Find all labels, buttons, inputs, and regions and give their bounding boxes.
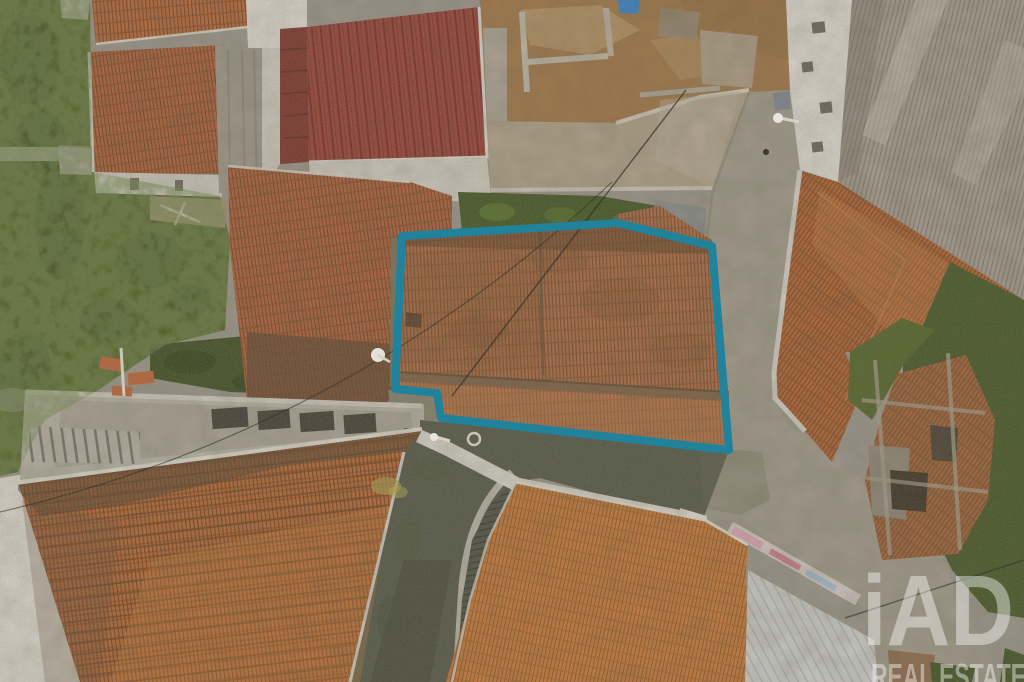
svg-text:iAD: iAD (862, 555, 1014, 667)
svg-text:REAL ESTATE: REAL ESTATE (871, 656, 1024, 682)
